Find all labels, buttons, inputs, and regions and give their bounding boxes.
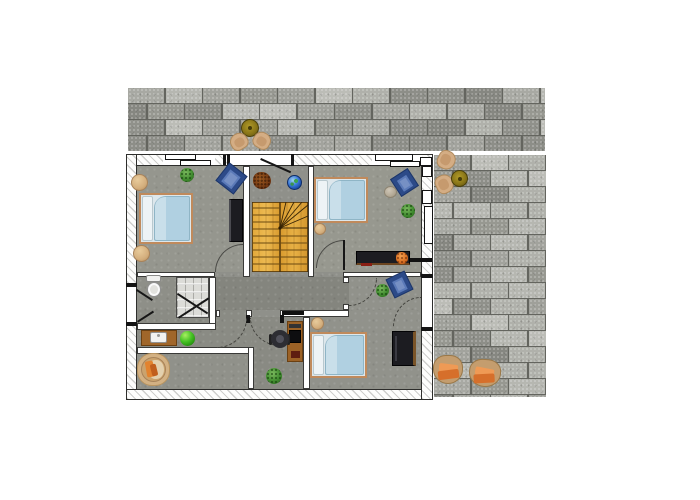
terrace-door-jamb-bottom (421, 327, 433, 331)
paving-tile (353, 88, 389, 103)
globe (287, 175, 302, 190)
paving-tile (391, 88, 427, 103)
paving-tile (260, 104, 296, 119)
door-leaf-bedroom2 (343, 240, 345, 270)
plant-office-nook (266, 368, 282, 384)
left-window-jamb-top (126, 283, 137, 287)
paving-tile (316, 120, 352, 135)
laptop (289, 330, 301, 343)
paving-tile (410, 104, 446, 119)
desk-red-item (291, 351, 300, 358)
terrace-paving-top (128, 88, 545, 151)
paving-tile (391, 120, 427, 135)
exterior-wall-left (126, 154, 137, 400)
paving-tile (485, 104, 521, 119)
bed-pillow (317, 180, 328, 220)
bistro-table-right (451, 170, 468, 187)
paving-tile (491, 267, 527, 282)
paving-tile (454, 395, 490, 397)
paving-tile (454, 299, 490, 314)
paving-tile (472, 219, 508, 234)
window-top-right-a (375, 154, 413, 161)
left-window-jamb-bottom (126, 322, 137, 326)
bed-pillow (142, 196, 153, 241)
paving-tile (472, 251, 508, 266)
paving-tile (241, 88, 277, 103)
paving-tile (509, 251, 545, 266)
pouf-bedroom-bottom-right (311, 317, 324, 330)
paving-tile (454, 235, 490, 250)
paving-tile (509, 347, 545, 362)
paving-tile (472, 155, 508, 170)
paving-tile (434, 299, 452, 314)
lounge-chair-a (433, 355, 463, 384)
paving-tile (529, 363, 547, 378)
paving-tile (434, 331, 452, 346)
paving-tile (185, 104, 221, 119)
paving-tile (472, 283, 508, 298)
paving-tile (454, 203, 490, 218)
paving-tile (529, 299, 547, 314)
paving-tile (529, 395, 547, 397)
window-right-b (422, 166, 432, 177)
paving-tile (203, 120, 239, 135)
paving-tile (541, 120, 546, 135)
paving-tile (503, 88, 539, 103)
wall-corridor-south-a (216, 310, 220, 317)
wall-black-segment-corridor (282, 311, 304, 315)
gray-pouf (384, 186, 397, 198)
staircase (252, 202, 308, 272)
pouf-bedroom-top-right (314, 223, 326, 235)
paving-tile (454, 267, 490, 282)
paving-tile (316, 88, 352, 103)
paving-tile (509, 315, 545, 330)
paving-tile (529, 171, 547, 186)
window-right-d (424, 206, 433, 244)
paving-tile (278, 120, 314, 135)
paving-tile (434, 315, 470, 330)
pouf-bottom (133, 245, 150, 262)
paving-tile (335, 136, 371, 151)
bed-bedroom-top-right (314, 177, 368, 223)
door-jamb-nook-right (280, 315, 284, 323)
paving-tile (434, 395, 452, 397)
paving-tile (485, 136, 521, 151)
paving-tile (298, 136, 334, 151)
exterior-wall-bottom (126, 389, 433, 400)
paving-tile (434, 219, 470, 234)
green-ball (180, 331, 195, 346)
paving-tile (434, 235, 452, 250)
paving-tile (298, 104, 334, 119)
paving-tile (509, 379, 545, 394)
paving-tile (148, 104, 184, 119)
floor-plan-canvas (0, 0, 700, 500)
paving-tile (278, 88, 314, 103)
paving-tile (529, 331, 547, 346)
paving-tile (428, 88, 464, 103)
paving-tile (523, 104, 546, 119)
paving-tile (148, 136, 184, 151)
entrance-jamb-right (291, 154, 294, 166)
wall-bathroom-south (137, 323, 216, 330)
wall-bottomleft-east (248, 347, 254, 389)
floor-corridor (216, 277, 349, 310)
paving-tile (529, 235, 547, 250)
paving-tile (373, 136, 409, 151)
desk-item (289, 324, 301, 328)
bed-pillow (313, 335, 324, 375)
paving-tile (373, 104, 409, 119)
bed-duvet (329, 180, 365, 220)
paving-tile (335, 104, 371, 119)
wardrobe-handle-line (395, 336, 397, 361)
paving-tile (472, 315, 508, 330)
terrace-door-jamb-top (421, 274, 433, 278)
paving-tile (185, 136, 221, 151)
paving-tile (410, 136, 446, 151)
bed-duvet (325, 335, 364, 375)
wall-black-segment-bedroom2 (408, 258, 432, 262)
pouf-top (131, 174, 148, 191)
dried-plant (253, 172, 271, 189)
vanity-faucet (157, 334, 160, 337)
window-frame-tick (223, 155, 226, 165)
paving-tile (503, 120, 539, 135)
orange-plant-on-sideboard (396, 252, 408, 264)
paving-tile (353, 120, 389, 135)
toilet-bowl-inner (150, 285, 158, 294)
paving-tile (128, 136, 146, 151)
paving-tile (466, 88, 502, 103)
plant-bedroom-bottom-right (376, 284, 389, 297)
paving-tile (509, 219, 545, 234)
plant-bedroom-top-right (401, 204, 415, 218)
left-window-opening (126, 287, 137, 322)
red-accessory (361, 263, 372, 266)
paving-tile (509, 187, 545, 202)
wall-bedroom1-hall (243, 166, 250, 277)
plant-bedroom-top-left (180, 168, 194, 182)
paving-tile (434, 267, 452, 282)
paving-tile (466, 120, 502, 135)
bed-bedroom-top-left (139, 193, 193, 244)
paving-tile (541, 88, 546, 103)
paving-tile (128, 104, 146, 119)
paving-tile (428, 120, 464, 135)
paving-tile (223, 104, 259, 119)
window-top-right-b (390, 161, 420, 167)
window-top-left-b (180, 160, 211, 166)
paving-tile (448, 104, 484, 119)
paving-tile (472, 187, 508, 202)
paving-tile (529, 203, 547, 218)
paving-tile (128, 120, 164, 135)
paving-tile (166, 88, 202, 103)
paving-tile (491, 171, 527, 186)
bed-bedroom-bottom-right (310, 332, 367, 378)
paving-tile (491, 203, 527, 218)
paving-tile (434, 203, 452, 218)
paving-tile (491, 235, 527, 250)
paving-tile (509, 283, 545, 298)
window-right-a (420, 157, 432, 166)
wall-h1-b (343, 272, 421, 277)
terrace-door-opening (421, 277, 433, 327)
paving-tile (491, 299, 527, 314)
paving-tile (529, 267, 547, 282)
paving-tile (166, 120, 202, 135)
paving-tile (491, 395, 527, 397)
paving-tile (203, 88, 239, 103)
window-right-c (422, 190, 432, 204)
wall-nook-east (303, 317, 310, 389)
office-chair-cushion (276, 335, 284, 343)
paving-tile (523, 136, 546, 151)
paving-tile (434, 283, 470, 298)
paving-tile (454, 331, 490, 346)
paving-tile (128, 88, 164, 103)
media-panel-bedroom-top-left (229, 199, 243, 242)
paving-tile (434, 251, 470, 266)
paving-tile (509, 155, 545, 170)
toilet-tank (146, 275, 161, 282)
bed-duvet (154, 196, 190, 241)
paving-tile (491, 331, 527, 346)
paving-tile (448, 136, 484, 151)
